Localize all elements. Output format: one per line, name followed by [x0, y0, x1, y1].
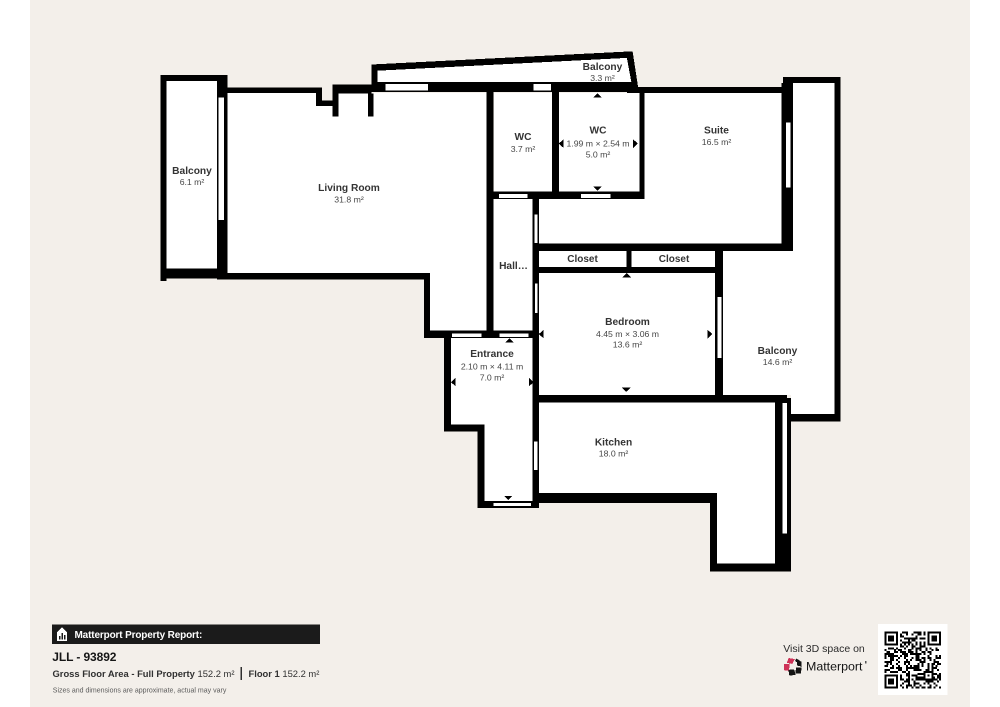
svg-text:Closet: Closet	[567, 254, 598, 265]
svg-text:4.45 m × 3.06 m: 4.45 m × 3.06 m	[596, 329, 659, 339]
svg-text:13.6 m²: 13.6 m²	[613, 340, 643, 350]
svg-text:18.0 m²: 18.0 m²	[599, 449, 629, 459]
svg-text:6.1 m²: 6.1 m²	[180, 177, 205, 187]
svg-text:Balcony: Balcony	[172, 166, 212, 177]
svg-text:Balcony: Balcony	[758, 346, 798, 357]
svg-text:1.99 m × 2.54 m: 1.99 m × 2.54 m	[566, 138, 629, 148]
svg-text:16.5 m²: 16.5 m²	[702, 137, 732, 147]
svg-text:Closet: Closet	[659, 254, 690, 265]
svg-text:Visit 3D space on: Visit 3D space on	[783, 643, 865, 655]
svg-text:Suite: Suite	[704, 126, 729, 137]
svg-text:3.3 m²: 3.3 m²	[590, 73, 615, 83]
svg-text:3.7 m²: 3.7 m²	[511, 144, 536, 154]
svg-text:2.10 m × 4.11 m: 2.10 m × 4.11 m	[461, 362, 523, 372]
svg-text:Bedroom: Bedroom	[605, 317, 650, 328]
svg-text:5.0 m²: 5.0 m²	[586, 150, 611, 160]
svg-text:WC: WC	[590, 126, 608, 137]
svg-text:Balcony: Balcony	[583, 62, 623, 73]
svg-text:31.8 m²: 31.8 m²	[334, 195, 364, 205]
svg-text:Sizes and dimensions are appro: Sizes and dimensions are approximate, ac…	[53, 687, 227, 694]
svg-text:Matterport Property Report:: Matterport Property Report:	[75, 630, 203, 641]
svg-text:Kitchen: Kitchen	[595, 438, 632, 449]
svg-text:7.0 m²: 7.0 m²	[480, 373, 505, 383]
svg-text:JLL - 93892: JLL - 93892	[52, 650, 116, 664]
svg-text:Matterport: Matterport	[806, 660, 863, 674]
svg-text:14.6 m²: 14.6 m²	[763, 357, 793, 367]
svg-text:Floor 1 152.2 m²: Floor 1 152.2 m²	[249, 668, 320, 679]
svg-text:Hall…: Hall…	[499, 261, 528, 272]
svg-text:Gross Floor Area - Full Proper: Gross Floor Area - Full Property 152.2 m…	[53, 668, 235, 679]
svg-text:Entrance: Entrance	[470, 349, 514, 360]
svg-text:WC: WC	[515, 132, 533, 143]
svg-text:Living Room: Living Room	[318, 183, 380, 194]
